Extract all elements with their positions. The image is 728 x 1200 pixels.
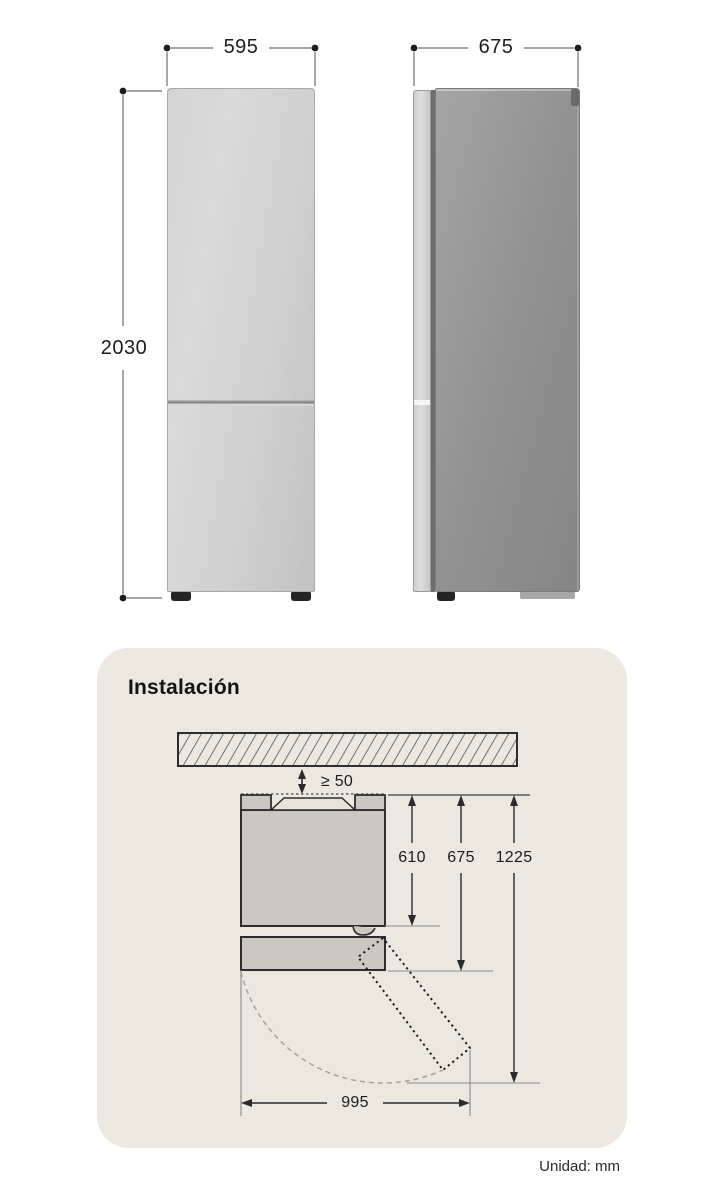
product-dimensions-figure: 595 675 2030 Instalación bbox=[0, 0, 728, 1200]
dimension-lines-layer bbox=[0, 0, 728, 630]
fridge-front-door-divider bbox=[168, 400, 314, 406]
unit-note: Unidad: mm bbox=[539, 1158, 620, 1175]
wall-hatch-bar bbox=[178, 733, 517, 766]
door-swing-arc bbox=[241, 972, 443, 1083]
front-height-label: 2030 bbox=[94, 337, 154, 359]
front-width-label: 595 bbox=[211, 36, 271, 58]
fridge-top-view-body bbox=[241, 795, 385, 935]
installation-diagram bbox=[97, 648, 627, 1148]
fridge-front-body bbox=[167, 88, 315, 592]
door-swing-width-label: 995 bbox=[325, 1093, 385, 1113]
clearance-label: ≥ 50 bbox=[307, 772, 367, 792]
fridge-front-left-foot bbox=[171, 592, 191, 601]
fridge-side-back-base bbox=[520, 592, 575, 599]
clearance-arrow bbox=[298, 769, 306, 794]
fridge-front-right-foot bbox=[291, 592, 311, 601]
fridge-side-foot bbox=[437, 592, 455, 601]
side-depth-label: 675 bbox=[466, 36, 526, 58]
door-open-depth-label: 1225 bbox=[482, 848, 546, 868]
fridge-top-recess bbox=[271, 798, 355, 810]
fridge-side-body bbox=[435, 88, 580, 592]
fridge-side-door-edge bbox=[413, 90, 431, 592]
fridge-side-door-divider bbox=[414, 400, 430, 405]
installation-panel: Instalación bbox=[97, 648, 627, 1148]
fridge-side-hinge bbox=[571, 89, 579, 106]
door-hinge-squiggle bbox=[353, 926, 375, 935]
